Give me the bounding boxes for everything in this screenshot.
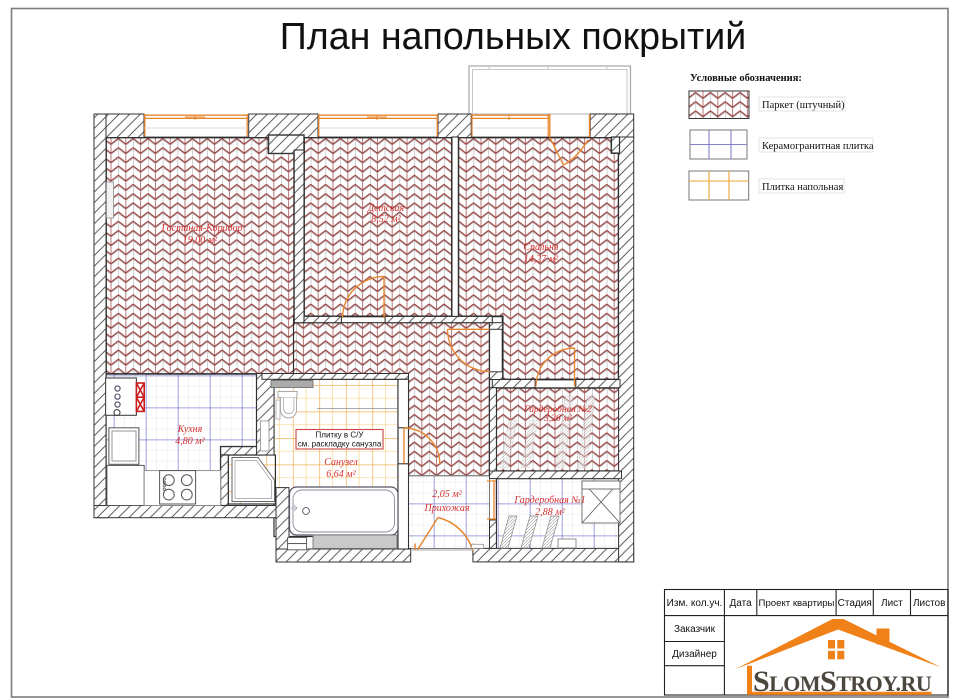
- svg-text:2,05 м²: 2,05 м²: [432, 489, 462, 500]
- svg-text:План напольных покрытий: План напольных покрытий: [280, 15, 746, 57]
- svg-text:Кухня: Кухня: [177, 424, 203, 435]
- svg-text:Санузел: Санузел: [324, 457, 358, 468]
- svg-text:3,26 м²: 3,26 м²: [543, 414, 572, 424]
- svg-text:2,88 м²: 2,88 м²: [535, 507, 565, 518]
- svg-text:Керамогранитная плитка: Керамогранитная плитка: [762, 141, 874, 152]
- svg-text:Листов: Листов: [913, 598, 946, 609]
- svg-text:Дизайнер: Дизайнер: [672, 649, 717, 660]
- svg-text:Проект квартиры: Проект квартиры: [759, 598, 835, 609]
- svg-text:Заказчик: Заказчик: [674, 624, 716, 635]
- svg-text:Плитка напольная: Плитка напольная: [762, 182, 843, 193]
- svg-text:см. раскладку санузла: см. раскладку санузла: [298, 440, 382, 449]
- svg-text:Дата: Дата: [730, 598, 753, 609]
- svg-text:14,27 м²: 14,27 м²: [524, 254, 559, 265]
- svg-text:Лист: Лист: [881, 598, 903, 609]
- svg-text:Прихожая: Прихожая: [424, 503, 470, 514]
- svg-text:4,80 м²: 4,80 м²: [175, 436, 205, 447]
- svg-text:19,00 м²: 19,00 м²: [183, 235, 218, 246]
- svg-text:Плитку в С/У: Плитку в С/У: [316, 431, 365, 440]
- svg-text:8,52 м²: 8,52 м²: [371, 214, 401, 225]
- svg-text:Стадия: Стадия: [838, 598, 872, 609]
- svg-text:Детская: Детская: [367, 203, 405, 214]
- svg-text:Гардеробная №1: Гардеробная №1: [513, 495, 585, 506]
- svg-text:Изм. кол.уч.: Изм. кол.уч.: [667, 598, 723, 609]
- svg-text:Гостиная-Коридор: Гостиная-Коридор: [160, 223, 242, 234]
- svg-text:Условные обозначения:: Условные обозначения:: [690, 73, 802, 84]
- svg-text:6,64 м²: 6,64 м²: [326, 469, 356, 480]
- svg-text:Спальня: Спальня: [523, 242, 559, 253]
- svg-text:Паркет (штучный): Паркет (штучный): [762, 100, 845, 111]
